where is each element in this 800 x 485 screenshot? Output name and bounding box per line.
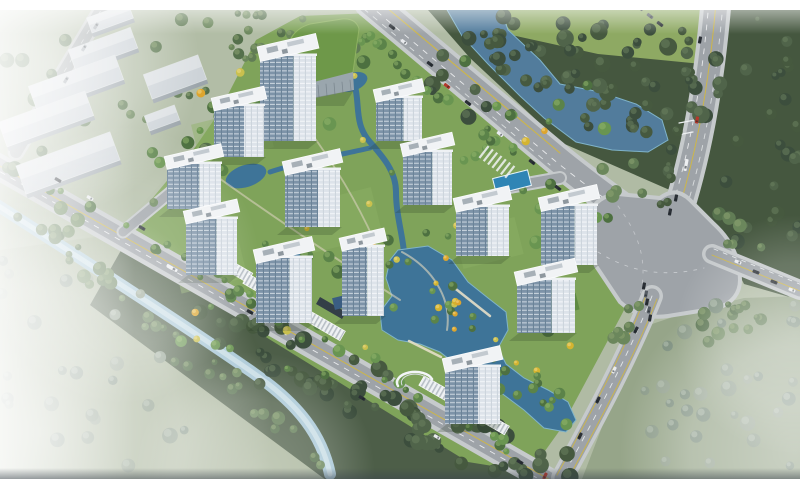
tower-1-facade-end [294,55,316,141]
tree-highlight [434,93,439,98]
tree-highlight [604,214,609,219]
tree-highlight [229,45,232,48]
tree-highlight [623,47,629,53]
tower-2-facade-end [404,97,422,141]
tree-highlight [482,102,488,108]
tree-highlight [501,367,506,372]
tree-highlight [772,72,776,76]
tree-highlight [453,312,456,315]
tree-highlight [546,179,551,184]
tree-highlight [554,100,560,106]
tree-highlight [536,450,542,456]
tree-highlight [694,107,703,116]
tree-highlight [629,159,634,164]
tree-highlight [662,108,669,115]
tree-highlight [783,57,788,62]
tower-8 [448,186,512,264]
tree-highlight [363,345,366,348]
tree-highlight [456,458,463,465]
tree-highlight [431,316,435,320]
tree-highlight [430,288,433,291]
tree-highlight [630,108,636,114]
tree-highlight [509,458,515,464]
tree-highlight [493,37,498,42]
tower-6-facade-main [285,169,318,227]
tower-7-facade-main [541,205,575,265]
tree-highlight [251,44,256,49]
tower-13-facade-end [478,366,500,424]
tree-highlight [324,252,330,258]
tree-highlight [506,111,511,116]
tree-highlight [514,361,517,364]
tower-4-shadow [395,205,454,213]
tower-6 [277,149,343,235]
tree-highlight [414,394,419,399]
tree-highlight [494,337,497,340]
tree-highlight [545,403,550,408]
tree-highlight [423,230,427,234]
tower-4 [395,132,455,213]
tree-highlight [382,377,385,380]
tree-highlight [394,257,397,260]
tree-highlight [360,137,363,140]
tree-highlight [563,71,570,78]
tree-highlight [638,189,643,194]
tree-highlight [403,387,406,390]
tree-highlight [412,413,419,420]
tree-highlight [596,57,604,65]
tree-highlight [733,136,739,142]
tree-highlight [452,327,455,330]
tree-highlight [412,435,420,443]
tree-highlight [546,119,549,122]
tree-highlight [386,261,390,265]
tree-highlight [534,373,538,377]
tree-highlight [635,302,640,307]
tree-highlight [741,64,747,70]
tree-highlight [390,304,394,308]
tree-highlight [358,56,365,63]
tower-8-facade-end [488,206,509,256]
tree-highlight [358,38,362,42]
tree-highlight [534,380,538,384]
tree-highlight [631,61,637,67]
tree-highlight [263,241,266,244]
tower-2 [368,79,425,149]
tree-highlight [434,281,437,284]
tower-10-facade-main [342,246,367,316]
tree-highlight [780,94,786,100]
tree-highlight [350,355,355,360]
tree-highlight [565,45,571,51]
tree-highlight [470,313,474,317]
tree-highlight [493,53,500,60]
tree-highlight [197,89,201,93]
tree-highlight [469,325,473,329]
tree-highlight [565,84,570,89]
tree-highlight [625,305,630,310]
tree-highlight [714,208,721,215]
tree-highlight [771,207,778,214]
tree-highlight [714,77,721,84]
tower-10-facade-end [367,246,384,316]
tower-7-facade-end [575,205,597,265]
tree-highlight [499,462,504,467]
tree-highlight [674,127,679,132]
tree-highlight [641,127,647,133]
tree-highlight [667,145,672,150]
tree-highlight [642,100,648,106]
tree-highlight [713,56,718,61]
tree-highlight [630,125,634,129]
tree-highlight [461,157,465,161]
tree-highlight [542,128,545,131]
tree-highlight [767,109,773,115]
tower-8-facade-main [456,206,488,256]
tower-13 [437,346,503,432]
tree-highlight [351,390,357,396]
tree-highlight [287,341,292,346]
tower-8-shadow [448,256,511,264]
tower-12-facade-main [517,279,552,333]
tree-highlight [609,84,614,89]
tree-highlight [581,114,586,119]
tree-highlight [333,266,340,273]
tree-highlight [504,449,507,452]
tree-highlight [531,237,538,244]
tree-highlight [381,391,387,397]
tower-4-facade-main [403,151,432,205]
tower-6-facade-end [318,169,340,227]
tree-highlight [782,37,787,42]
tree-highlight [792,121,798,127]
tower-4-facade-end [432,151,452,205]
tree-highlight [418,420,425,427]
tree-highlight [572,70,577,75]
tree-highlight [661,39,670,48]
tree-highlight [734,220,741,227]
tree-highlight [666,173,671,178]
tree-highlight [770,182,775,187]
tree-highlight [444,95,450,101]
tree-highlight [383,371,389,377]
tree-highlight [234,49,240,55]
tree-highlight [510,50,516,56]
tree-highlight [462,110,470,118]
tree-highlight [567,343,571,347]
tower-11-facade-main [256,257,290,323]
tree-highlight [237,69,241,73]
tree-highlight [491,432,496,437]
tree-highlight [529,384,534,389]
tree-highlight [534,458,542,466]
tree-highlight [436,305,440,309]
tree-highlight [599,123,606,130]
tree-highlight [561,447,569,455]
tree-highlight [485,126,488,129]
tree-highlight [625,322,630,327]
tree-highlight [452,298,456,302]
tree-highlight [367,201,370,204]
tower-13-shadow [437,424,502,432]
tree-highlight [658,201,662,205]
tree-highlight [687,102,693,108]
tree-highlight [776,140,781,145]
tree-highlight [498,434,504,440]
tree-highlight [583,81,588,86]
tree-highlight [334,345,340,351]
tree-highlight [471,85,477,91]
tree-highlight [324,118,331,125]
tree-highlight [534,368,537,371]
tree-highlight [598,164,604,170]
tower-3-facade-end [244,105,264,157]
tree-highlight [521,75,527,81]
tower-11-facade-end [290,257,312,323]
tree-highlight [234,35,239,40]
tree-highlight [534,83,539,88]
tree-highlight [650,82,656,88]
tree-highlight [456,300,459,303]
tree-highlight [542,80,547,85]
tree-highlight [389,170,392,173]
tree-highlight [682,48,688,54]
shadow-bottom-strip [0,468,800,479]
tree-highlight [389,50,394,55]
tower-12-shadow [509,333,577,341]
tree-highlight [778,69,782,73]
tower-13-facade-main [445,366,478,424]
tree-highlight [685,37,689,41]
tree-highlight [445,233,448,236]
tree-highlight [642,78,647,83]
tree-highlight [449,282,454,287]
tower-12-facade-end [552,279,575,333]
tree-highlight [248,54,252,58]
tree-highlight [664,166,670,172]
page-margin-top [0,0,800,10]
tree-highlight [299,337,302,340]
tree-highlight [664,198,668,202]
tree-highlight [609,333,615,339]
tree-highlight [585,122,590,127]
tree-highlight [460,56,466,62]
tree-highlight [721,176,727,182]
tree-highlight [437,70,443,76]
tree-highlight [394,61,398,65]
tree-highlight [479,130,485,136]
tree-highlight [614,328,619,333]
tree-highlight [438,50,444,56]
tree-highlight [510,144,514,148]
tree-highlight [493,102,498,107]
tree-highlight [549,397,552,400]
aerial-site-rendering [0,0,800,485]
tree-highlight [401,402,409,410]
tree-highlight [634,38,638,42]
tree-highlight [197,128,201,132]
scene-svg [0,0,800,485]
tower-11-shadow [248,323,314,331]
tree-highlight [682,67,687,72]
tower-2-facade-main [376,97,404,141]
tree-highlight [425,77,434,86]
tree-highlight [522,138,526,142]
tree-highlight [526,43,530,47]
tree-highlight [373,41,377,45]
tree-highlight [540,400,544,404]
tree-highlight [592,102,597,107]
tower-12 [509,258,578,341]
tower-6-shadow [277,227,342,235]
tree-highlight [579,34,583,38]
page-margin-bottom [0,479,800,485]
tree-highlight [562,419,568,425]
tree-highlight [372,403,376,407]
tree-highlight [472,152,477,157]
tree-highlight [322,337,325,340]
tree-highlight [514,391,519,396]
tree-highlight [446,301,450,305]
tree-highlight [555,389,561,395]
tree-highlight [593,79,601,87]
tree-highlight [401,70,406,75]
tree-highlight [686,77,690,81]
tree-highlight [405,259,409,263]
tree-highlight [607,190,614,197]
tree-highlight [790,153,796,159]
tree-highlight [724,212,731,219]
tree-highlight [371,354,376,359]
tree-highlight [444,256,447,259]
